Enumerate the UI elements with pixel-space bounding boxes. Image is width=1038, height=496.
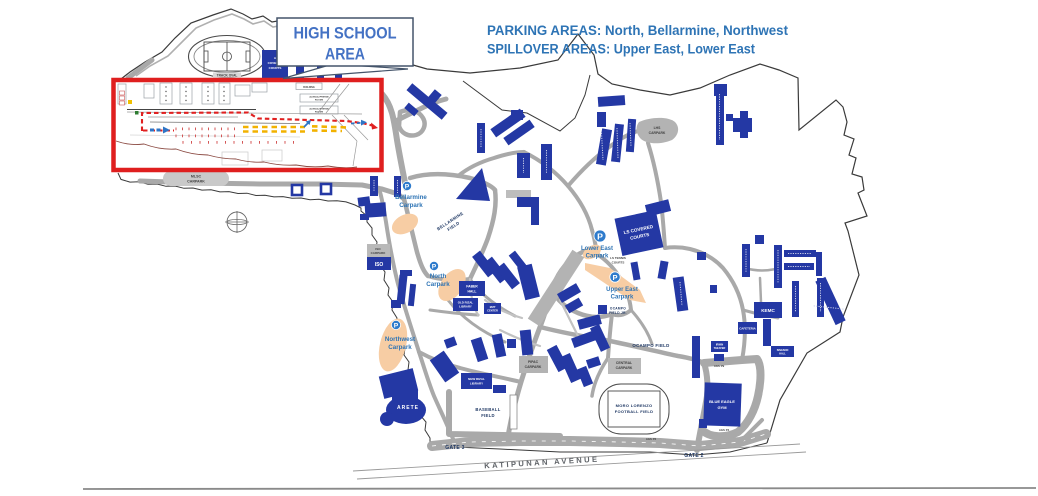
svg-text:CARPARK: CARPARK — [649, 131, 666, 135]
svg-text:CARPARK: CARPARK — [187, 180, 205, 184]
svg-text:North: North — [430, 273, 447, 280]
svg-text:AGS P2: AGS P2 — [646, 437, 657, 441]
svg-text:FIELD: FIELD — [481, 413, 495, 418]
svg-text:LIBRARY: LIBRARY — [470, 382, 483, 386]
svg-text:P: P — [597, 231, 603, 241]
svg-text:P: P — [394, 323, 399, 330]
svg-text:Carpark: Carpark — [586, 254, 609, 260]
svg-text:BLUE EAGLE: BLUE EAGLE — [709, 399, 735, 404]
svg-text:HIGH SCHOOL: HIGH SCHOOL — [294, 24, 397, 43]
svg-text:ROOMS: ROOMS — [315, 99, 324, 101]
svg-text:THEATER: THEATER — [714, 347, 726, 350]
svg-text:AREA: AREA — [325, 45, 365, 64]
svg-text:MVP: MVP — [490, 305, 496, 309]
svg-text:AGS P4: AGS P4 — [719, 428, 730, 432]
svg-text:CAFETERIA: CAFETERIA — [739, 327, 756, 331]
svg-text:ISO: ISO — [375, 262, 384, 268]
svg-text:CARPARK: CARPARK — [371, 251, 387, 255]
svg-text:COURTS: COURTS — [612, 261, 625, 265]
svg-text:MLSC: MLSC — [191, 175, 202, 179]
svg-text:MORO LORENZO: MORO LORENZO — [616, 403, 653, 408]
svg-text:KEMC: KEMC — [761, 308, 775, 313]
svg-text:Northwest: Northwest — [385, 336, 415, 343]
svg-text:OCAMPO FIELD: OCAMPO FIELD — [632, 343, 669, 348]
svg-text:Carpark: Carpark — [399, 202, 423, 209]
svg-text:P: P — [432, 264, 437, 271]
svg-text:PIPAC: PIPAC — [528, 360, 539, 364]
svg-text:LHS: LHS — [654, 126, 662, 130]
svg-text:PARKING AREAS: North, Bellarmi: PARKING AREAS: North, Bellarmine, Northw… — [487, 23, 789, 38]
svg-text:FIELD JR.: FIELD JR. — [609, 311, 627, 315]
svg-text:Carpark: Carpark — [611, 295, 634, 301]
svg-text:OCAMPO: OCAMPO — [610, 307, 626, 311]
svg-text:SPILLOVER AREAS: Upper East, L: SPILLOVER AREAS: Upper East, Lower East — [487, 41, 756, 56]
svg-text:CARPARK: CARPARK — [525, 365, 542, 369]
svg-text:Carpark: Carpark — [388, 344, 412, 351]
svg-text:CENTER: CENTER — [487, 309, 498, 313]
svg-text:HALL: HALL — [779, 353, 786, 356]
svg-text:ARETE: ARETE — [397, 405, 419, 411]
svg-text:LIBRARY: LIBRARY — [459, 305, 472, 309]
svg-text:BUILDING: BUILDING — [303, 86, 315, 89]
svg-text:CENTRAL: CENTRAL — [616, 361, 632, 365]
svg-text:ALINGAL/PREFAB: ALINGAL/PREFAB — [309, 96, 329, 99]
svg-text:NEW RIZAL: NEW RIZAL — [468, 377, 485, 381]
svg-text:Lower East: Lower East — [581, 246, 613, 252]
svg-text:P: P — [405, 184, 410, 191]
svg-text:AGS P9: AGS P9 — [714, 364, 725, 368]
svg-text:FABER: FABER — [466, 285, 478, 289]
svg-text:LS TENNIS: LS TENNIS — [610, 256, 626, 260]
svg-text:ALINGAL/PREFAB: ALINGAL/PREFAB — [309, 108, 329, 111]
svg-text:GYM: GYM — [717, 405, 727, 410]
svg-text:BASEBALL: BASEBALL — [475, 407, 500, 412]
svg-text:GATE 3: GATE 3 — [445, 445, 465, 451]
svg-text:P: P — [612, 273, 617, 282]
svg-text:FOOTBALL FIELD: FOOTBALL FIELD — [615, 409, 654, 414]
svg-text:CARPARK: CARPARK — [616, 366, 633, 370]
svg-text:TRACK OVAL: TRACK OVAL — [217, 74, 238, 78]
svg-text:Upper East: Upper East — [606, 287, 638, 293]
svg-text:Carpark: Carpark — [426, 281, 450, 288]
svg-text:HALL: HALL — [467, 290, 476, 294]
svg-text:Bellarmine: Bellarmine — [395, 194, 427, 201]
